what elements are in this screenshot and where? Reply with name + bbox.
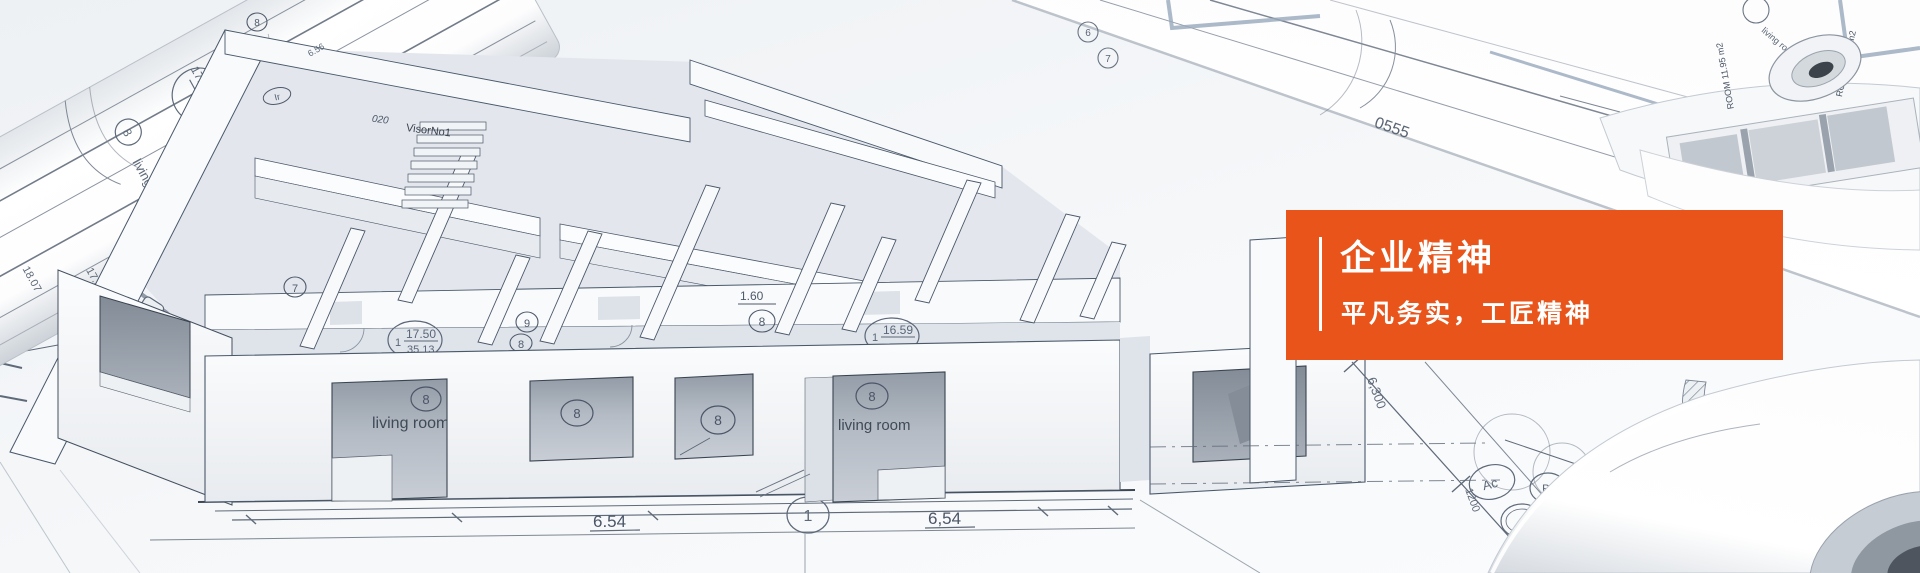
- floor-mark-9: 9: [524, 318, 530, 330]
- hero-banner: 6 3 1.25 chen 8.4 17.50 35.13 8 living r…: [0, 0, 1920, 573]
- floor-mark-8a: 8: [759, 315, 766, 329]
- floor-mark-8b: 8: [518, 339, 524, 351]
- banner-title: 企业精神: [1340, 240, 1496, 279]
- window2-mark-8: 8: [573, 406, 580, 421]
- roll-mark-6: 6: [1085, 28, 1091, 39]
- window4-living-room: living room: [838, 417, 911, 434]
- window1-living-room: living room: [372, 415, 449, 432]
- window3-mark-8: 8: [714, 412, 722, 428]
- floor-mark-1b: 1: [872, 332, 878, 344]
- floor-area-1659: 16.59: [883, 323, 913, 337]
- corporate-spirit-banner: 企业精神 平凡务实，工匠精神: [1286, 210, 1783, 360]
- floor-mark-8c: 8: [254, 18, 260, 29]
- banner-subtitle: 平凡务实，工匠精神: [1341, 299, 1593, 329]
- code-020: 020: [371, 114, 389, 127]
- floor-area-1750: 17.50: [406, 327, 436, 341]
- window1-mark-8: 8: [422, 392, 429, 407]
- axis-mark-1: 1: [804, 508, 813, 525]
- banner-accent-line: [1319, 237, 1322, 331]
- floor-mark-7: 7: [292, 283, 298, 295]
- floor-mark-1: 1: [395, 337, 401, 349]
- floor-dim-160: 1.60: [740, 289, 764, 303]
- roll-mark-7: 7: [1105, 54, 1111, 65]
- window4-mark-8: 8: [868, 389, 875, 404]
- dim-654-left: 6.54: [593, 512, 626, 531]
- dim-654-right: 6,54: [928, 509, 961, 528]
